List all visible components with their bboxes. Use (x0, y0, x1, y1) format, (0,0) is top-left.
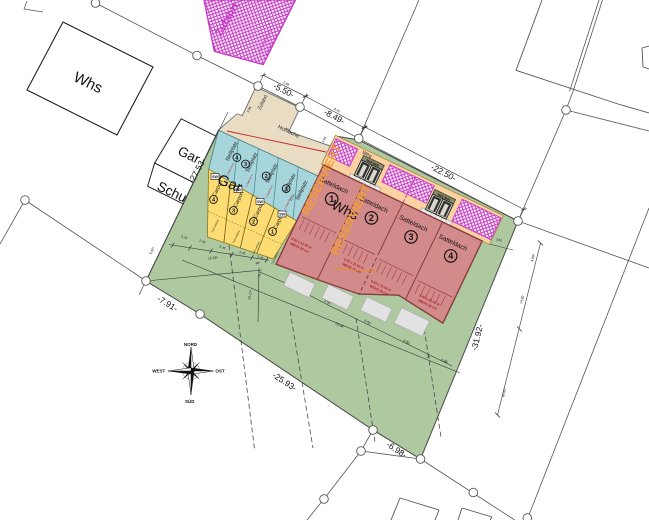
svg-text:1: 1 (271, 230, 274, 236)
svg-text:OST: OST (215, 369, 225, 374)
svg-text:NORD: NORD (184, 342, 198, 347)
svg-text:2: 2 (252, 220, 255, 226)
svg-text:WEST: WEST (152, 369, 165, 374)
svg-text:3: 3 (232, 209, 235, 215)
svg-text:3: 3 (244, 162, 247, 168)
svg-text:SW: SW (279, 213, 285, 217)
svg-text:2: 2 (369, 213, 374, 223)
svg-text:3: 3 (408, 232, 413, 242)
svg-text:SÜD: SÜD (185, 398, 195, 404)
svg-text:2: 2 (265, 174, 268, 180)
svg-text:SW: SW (257, 200, 263, 204)
svg-text:1: 1 (285, 187, 288, 193)
svg-text:4: 4 (448, 251, 453, 261)
